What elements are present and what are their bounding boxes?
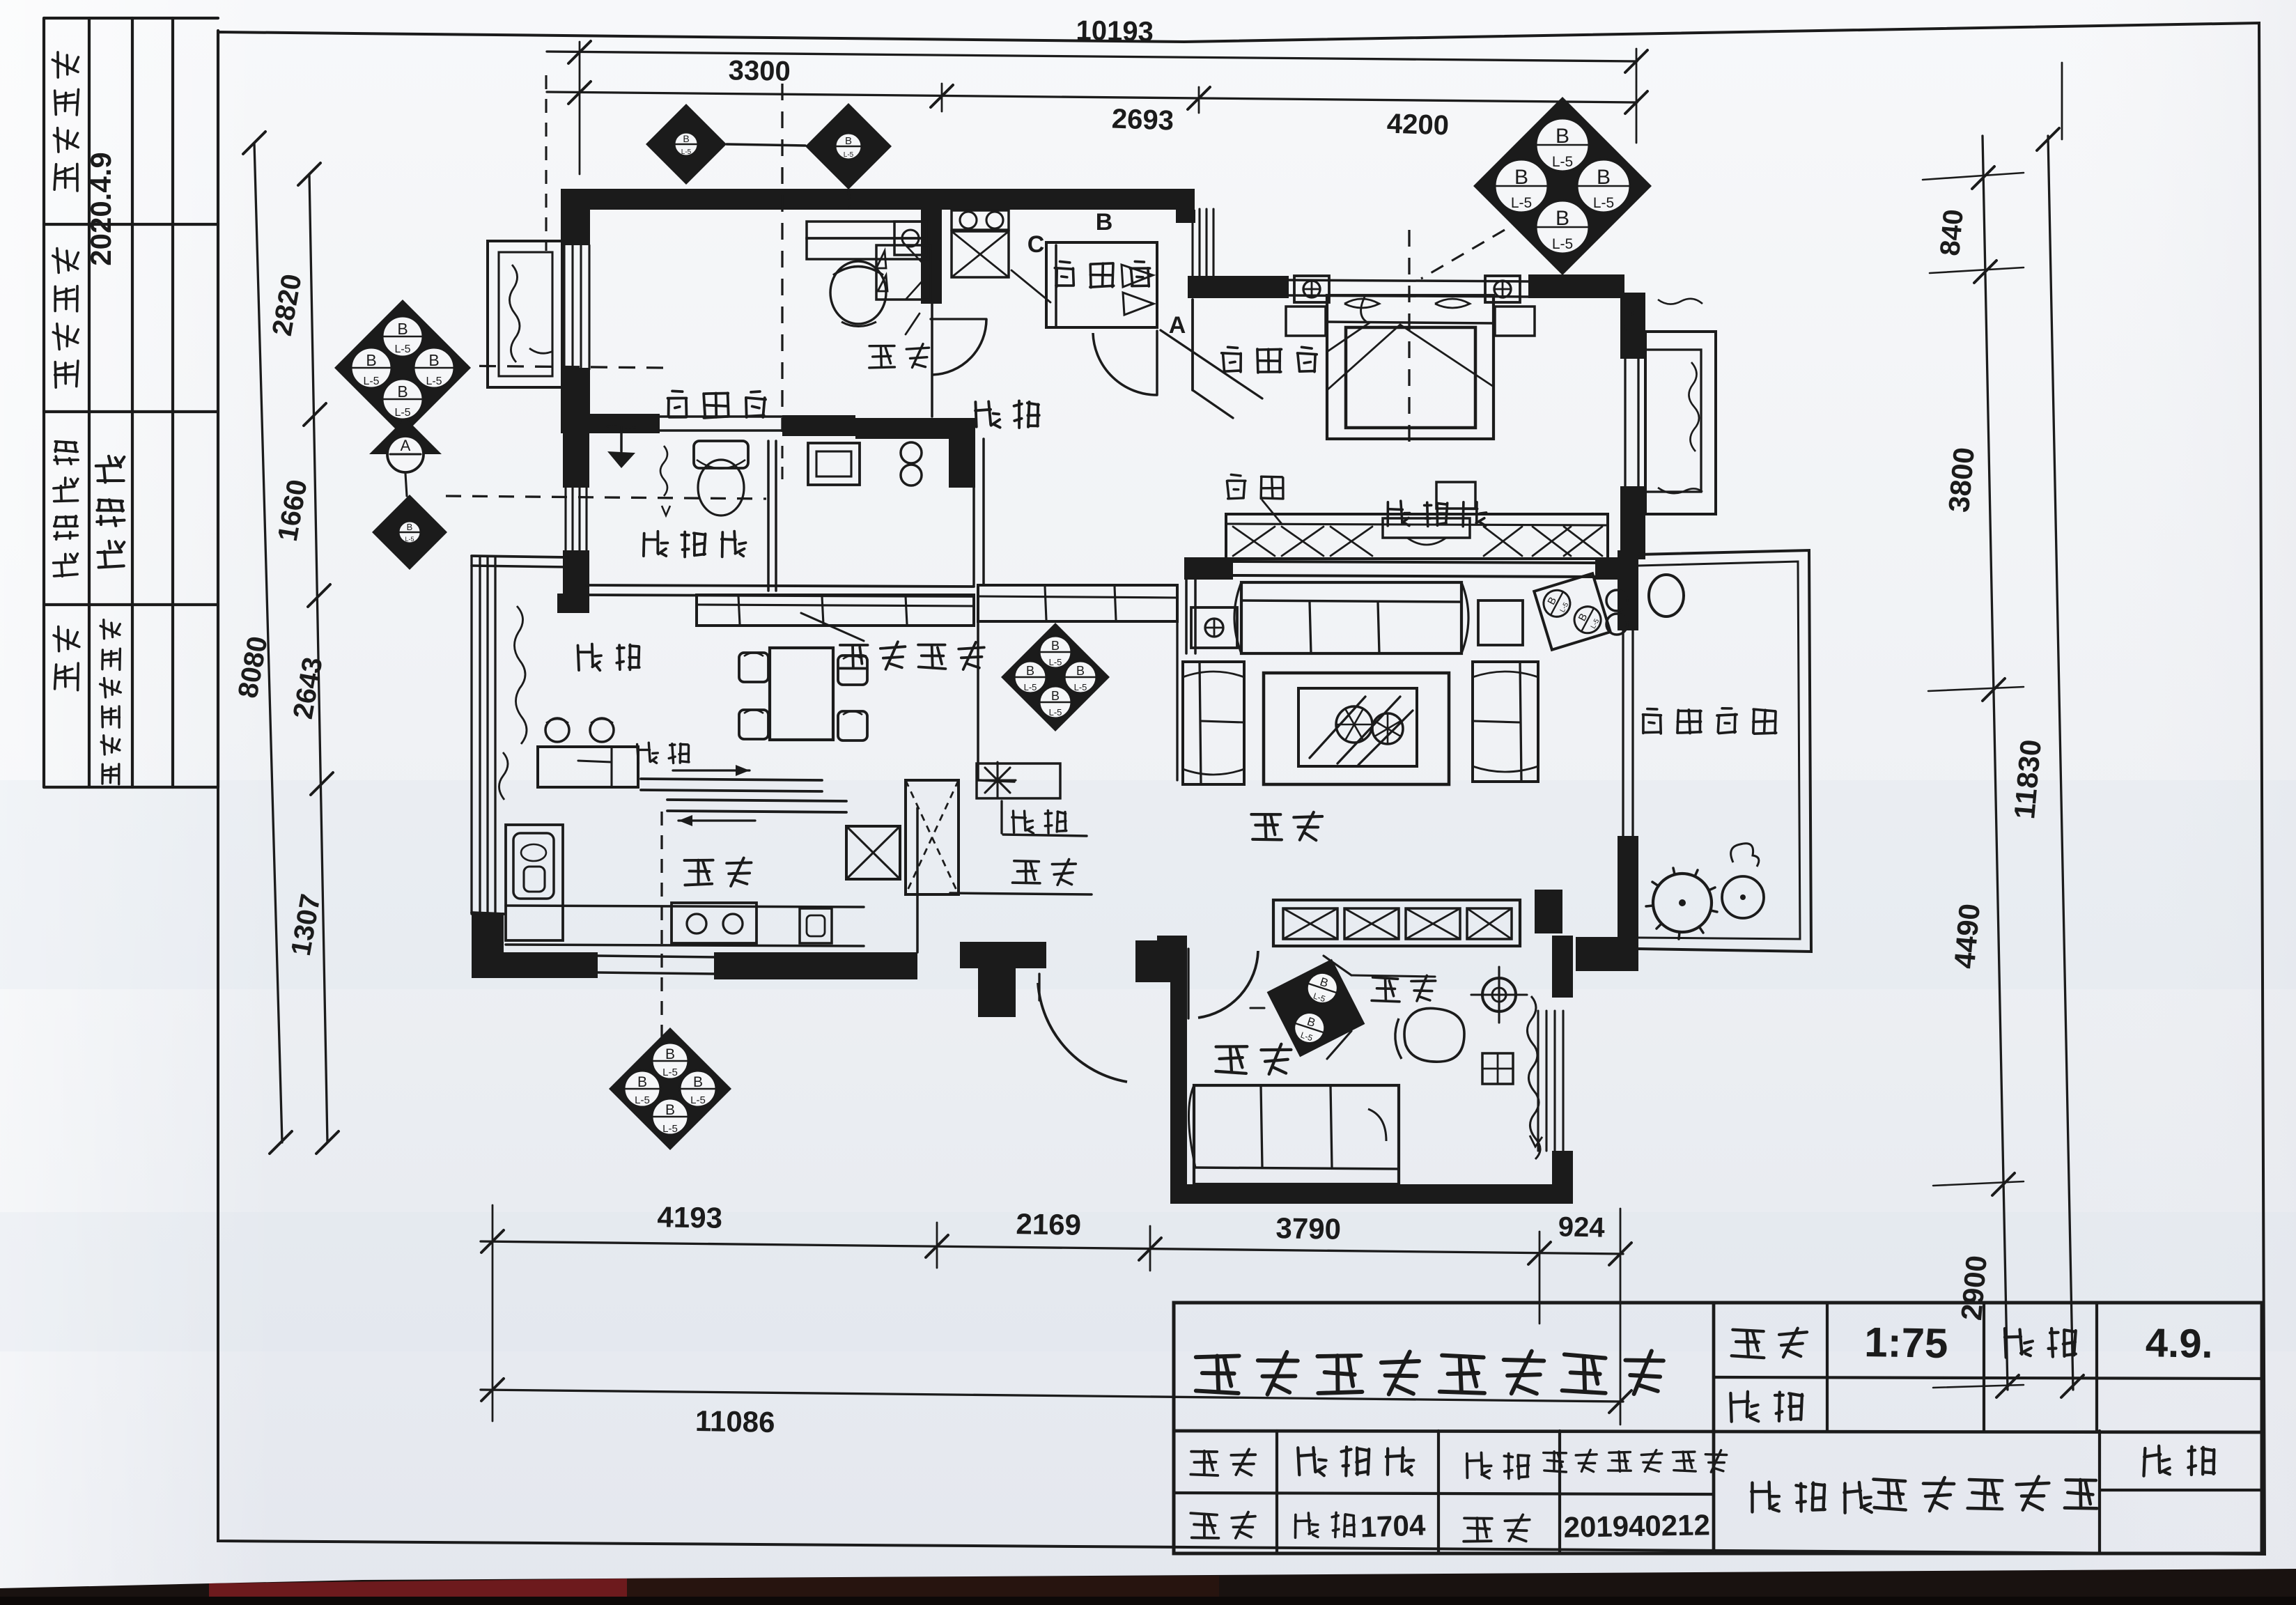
svg-text:3800: 3800 [1942,446,1980,513]
svg-text:L-5: L-5 [1552,236,1573,252]
svg-text:B: B [1096,209,1113,235]
svg-text:2020.4.9: 2020.4.9 [84,152,117,266]
svg-text:1:75: 1:75 [1864,1319,1948,1367]
svg-text:C: C [1027,231,1045,258]
svg-text:L-5: L-5 [1074,682,1087,692]
svg-text:10193: 10193 [1076,15,1154,47]
svg-text:2900: 2900 [1955,1254,1993,1321]
svg-text:B: B [665,1046,675,1062]
svg-text:11830: 11830 [2008,738,2047,821]
svg-text:B: B [428,351,439,369]
svg-text:L-5: L-5 [1511,195,1532,211]
svg-text:B: B [845,135,852,147]
svg-text:4.9.: 4.9. [2145,1320,2213,1367]
svg-text:B: B [407,522,413,532]
svg-text:1704: 1704 [1360,1508,1427,1543]
svg-text:B: B [1556,207,1569,230]
svg-text:L-5: L-5 [1049,657,1062,667]
svg-text:L-5: L-5 [1552,154,1573,170]
svg-text:2169: 2169 [1016,1207,1081,1241]
svg-text:B: B [693,1074,703,1090]
svg-text:L-5: L-5 [662,1123,678,1135]
svg-text:4193: 4193 [657,1200,722,1234]
svg-text:3300: 3300 [728,55,791,87]
svg-text:L-5: L-5 [635,1094,650,1106]
svg-text:B: B [683,133,689,144]
svg-text:11086: 11086 [695,1404,775,1439]
svg-text:L-5: L-5 [681,148,692,156]
svg-text:B: B [665,1102,675,1118]
svg-text:L-5: L-5 [662,1067,678,1078]
svg-text:B: B [1051,639,1060,653]
svg-text:L-5: L-5 [690,1094,706,1106]
svg-text:840: 840 [1934,208,1969,257]
svg-text:2693: 2693 [1111,103,1174,136]
svg-text:B: B [1026,664,1034,678]
svg-text:201940212: 201940212 [1563,1508,1710,1544]
svg-text:A: A [1169,312,1186,339]
svg-text:L-5: L-5 [426,375,442,387]
svg-text:L-5: L-5 [1593,195,1614,211]
svg-text:B: B [637,1074,647,1090]
svg-text:B: B [1076,664,1085,678]
svg-text:L-5: L-5 [405,536,414,543]
svg-text:L-5: L-5 [363,375,379,387]
svg-text:B: B [1051,689,1060,703]
svg-text:3790: 3790 [1275,1211,1341,1246]
svg-text:B: B [397,320,408,338]
svg-text:L-5: L-5 [394,343,410,355]
svg-text:L-5: L-5 [844,151,854,159]
svg-text:B: B [1597,166,1611,189]
svg-text:924: 924 [1558,1211,1605,1243]
svg-text:L-5: L-5 [1024,682,1037,692]
svg-text:B: B [397,382,408,401]
svg-text:L-5: L-5 [1049,707,1062,718]
svg-text:B: B [1556,125,1569,148]
svg-text:B: B [1514,166,1528,189]
svg-text:B: B [366,351,376,369]
svg-text:L-5: L-5 [394,407,410,419]
svg-text:4490: 4490 [1948,902,1986,970]
svg-text:A: A [401,437,411,454]
svg-text:4200: 4200 [1386,108,1449,141]
